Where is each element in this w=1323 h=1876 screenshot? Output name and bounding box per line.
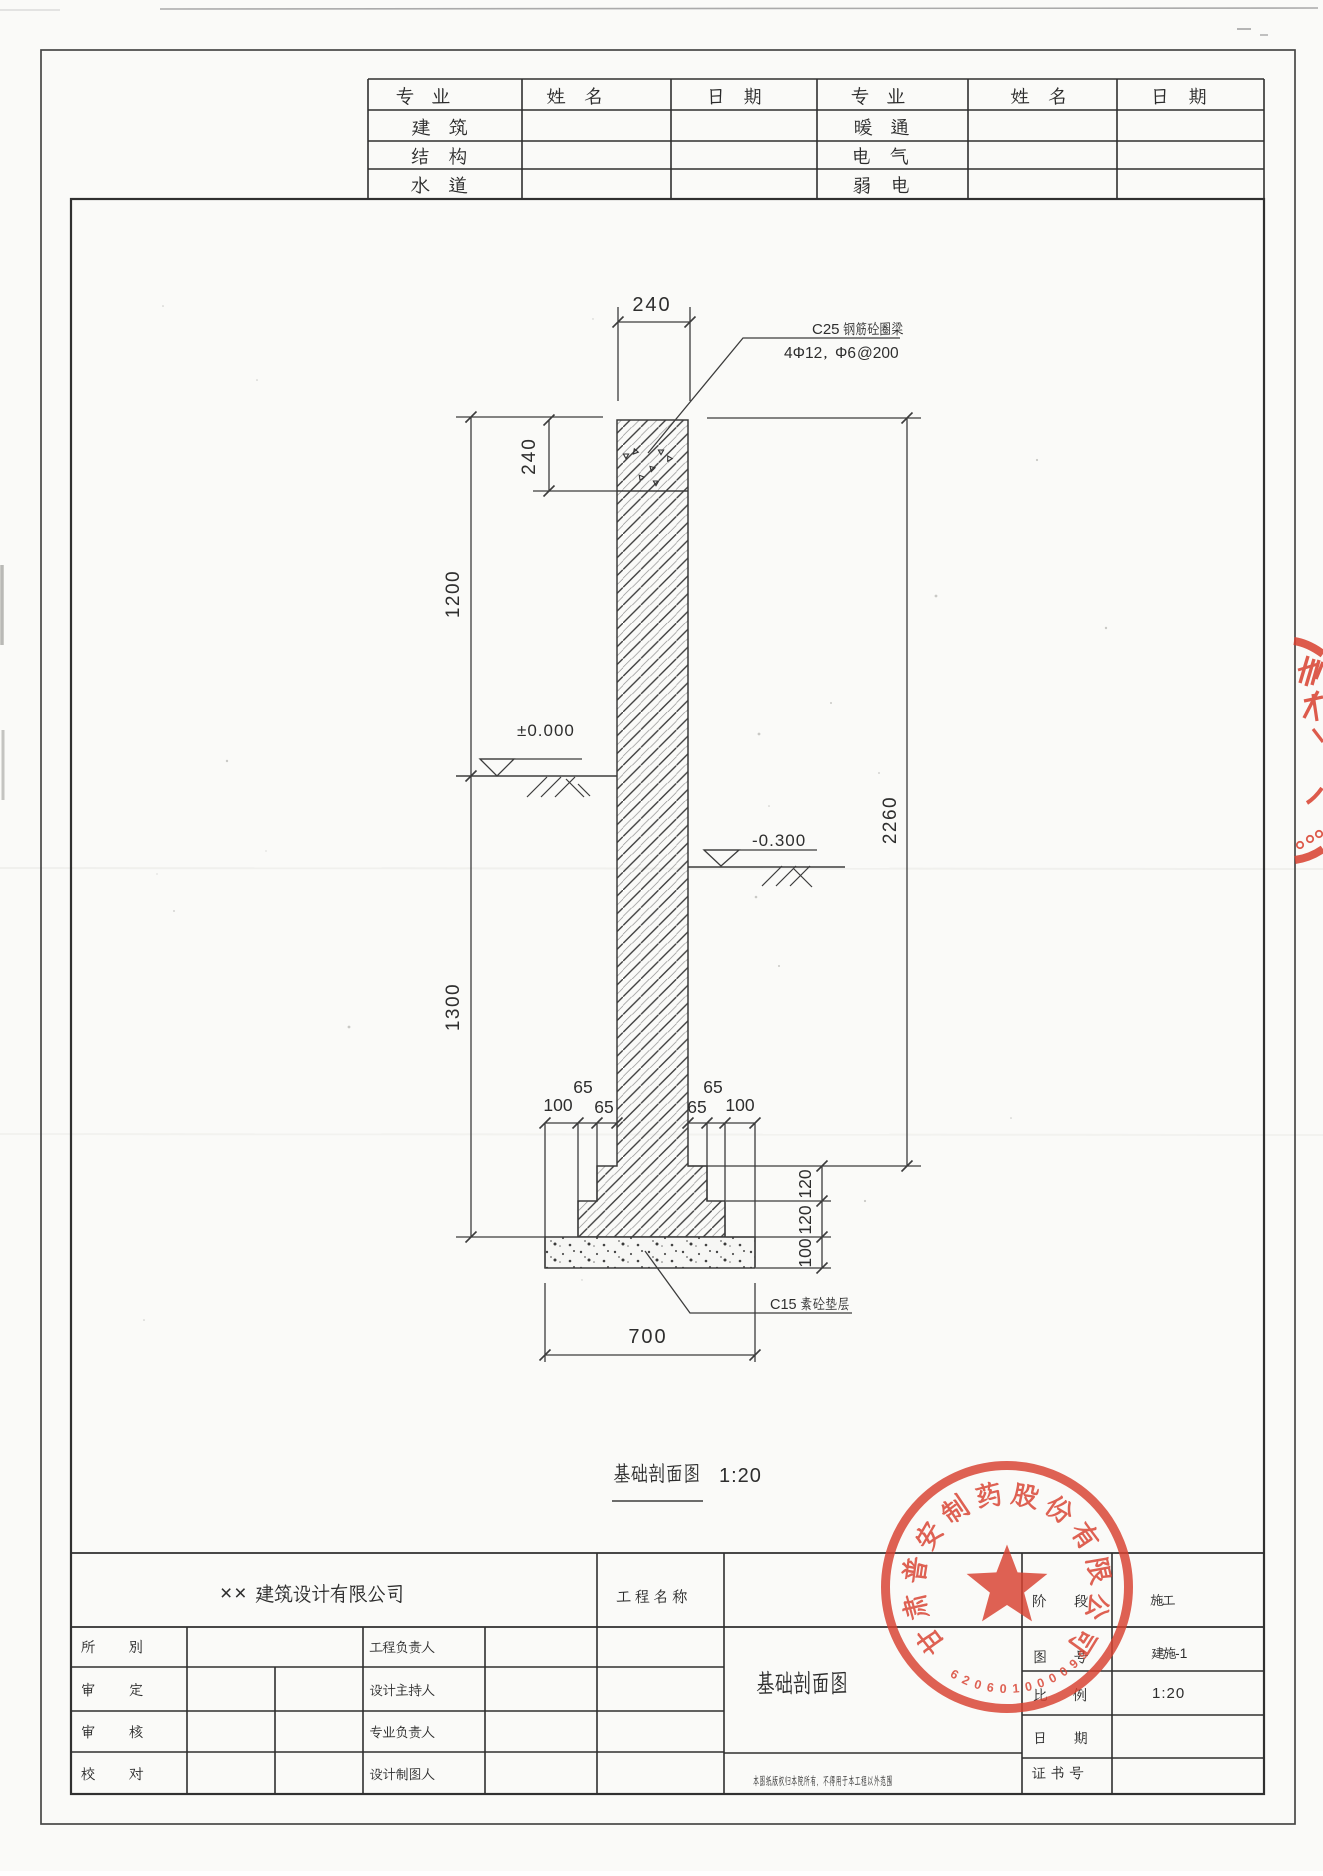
svg-text:2260: 2260 [880, 796, 901, 844]
svg-text:-0.300: -0.300 [752, 831, 806, 850]
svg-text:Φ6: Φ6 [835, 345, 856, 362]
svg-text:C15: C15 [770, 1297, 797, 1313]
svg-text:××: ×× [220, 1582, 249, 1605]
svg-text:65: 65 [687, 1097, 706, 1117]
svg-text:100: 100 [543, 1095, 572, 1115]
svg-text:100: 100 [725, 1095, 754, 1115]
svg-text:1: 1 [1012, 1681, 1020, 1696]
svg-text:120: 120 [795, 1169, 815, 1198]
svg-text:1:20: 1:20 [719, 1465, 762, 1487]
svg-text:@200: @200 [857, 345, 899, 362]
svg-text:65: 65 [594, 1097, 613, 1117]
svg-text:65: 65 [703, 1077, 722, 1097]
svg-text:100: 100 [795, 1238, 815, 1267]
svg-text:700: 700 [628, 1326, 667, 1348]
svg-text:C25: C25 [812, 321, 840, 338]
svg-text:4Φ12: 4Φ12 [784, 345, 822, 362]
svg-text:0: 0 [999, 1682, 1007, 1696]
svg-text:-1: -1 [1175, 1645, 1188, 1661]
svg-text:1200: 1200 [443, 570, 464, 618]
svg-text:1300: 1300 [443, 983, 464, 1031]
svg-text:120: 120 [795, 1205, 815, 1234]
svg-text:240: 240 [519, 437, 540, 475]
svg-text:65: 65 [573, 1077, 592, 1097]
svg-text:1:20: 1:20 [1152, 1685, 1185, 1702]
svg-text:240: 240 [632, 294, 671, 316]
svg-text:±0.000: ±0.000 [517, 721, 575, 740]
